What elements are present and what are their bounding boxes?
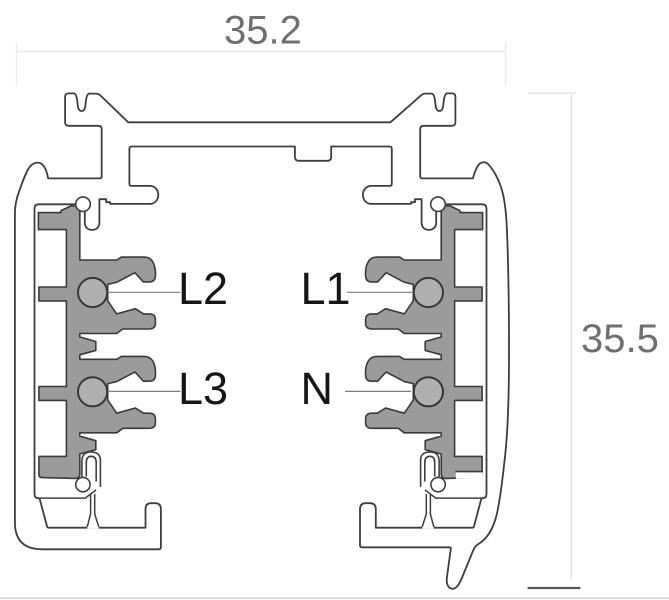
svg-text:L3: L3 (178, 363, 228, 414)
svg-text:35.5: 35.5 (581, 317, 659, 361)
svg-text:L2: L2 (178, 263, 228, 314)
svg-text:35.2: 35.2 (224, 9, 302, 53)
svg-text:L1: L1 (301, 263, 351, 314)
svg-text:N: N (301, 363, 334, 414)
